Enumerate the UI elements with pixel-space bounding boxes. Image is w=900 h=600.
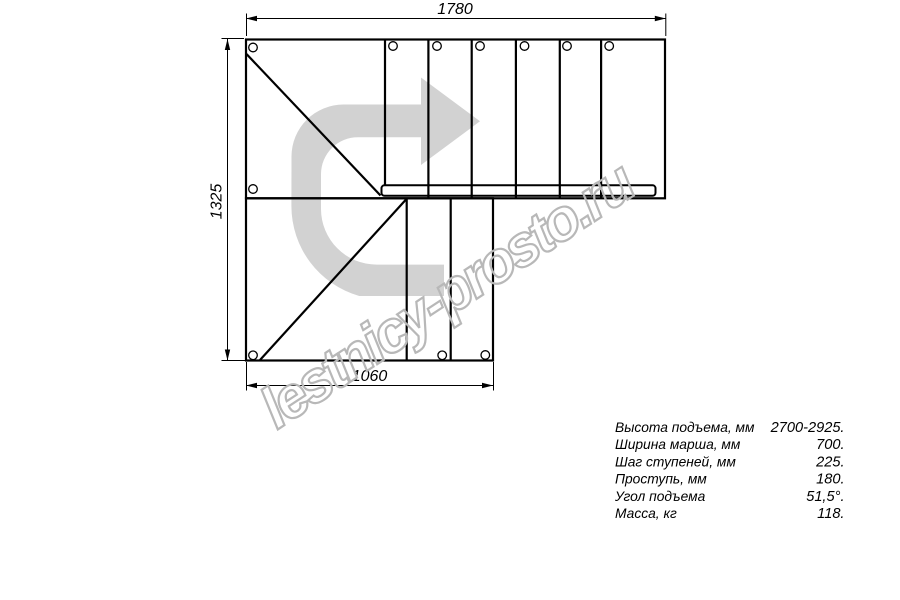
- svg-text:180.: 180.: [816, 472, 844, 488]
- svg-text:Ширина марша, мм: Ширина марша, мм: [615, 437, 741, 452]
- svg-text:1325: 1325: [209, 184, 226, 220]
- svg-text:225.: 225.: [815, 454, 844, 470]
- svg-text:700.: 700.: [816, 437, 844, 453]
- svg-text:118.: 118.: [817, 506, 844, 522]
- svg-text:51,5°.: 51,5°.: [806, 489, 844, 505]
- svg-text:Шаг ступеней, мм: Шаг ступеней, мм: [615, 454, 736, 469]
- svg-text:Высота подъема, мм: Высота подъема, мм: [615, 420, 755, 435]
- svg-text:2700-2925.: 2700-2925.: [770, 420, 845, 436]
- svg-text:Угол подъема: Угол подъема: [614, 489, 706, 504]
- svg-text:Масса, кг: Масса, кг: [615, 506, 677, 521]
- svg-text:1780: 1780: [437, 1, 473, 18]
- svg-text:Проступь, мм: Проступь, мм: [615, 472, 707, 487]
